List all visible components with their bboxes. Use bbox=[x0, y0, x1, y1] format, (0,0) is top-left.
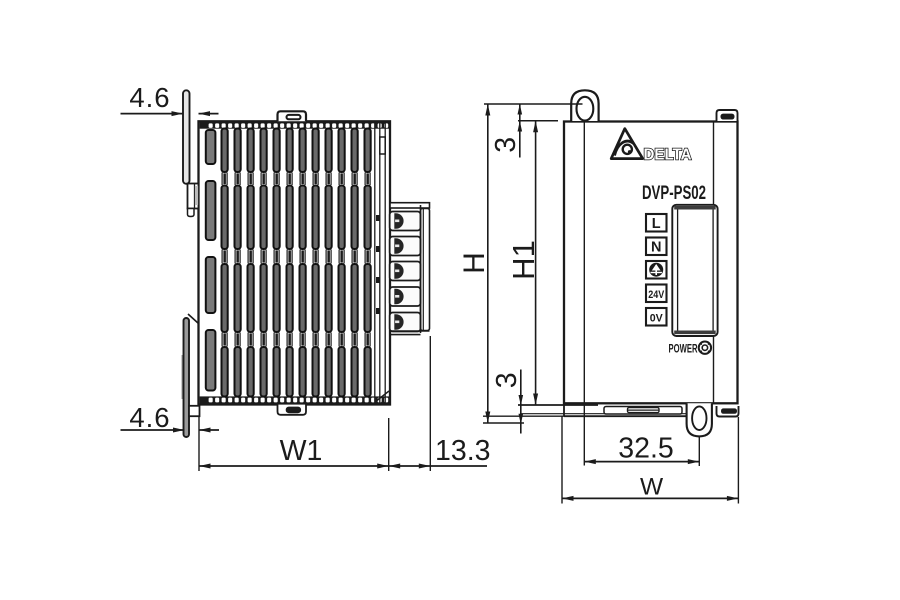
svg-text:24V: 24V bbox=[648, 289, 665, 301]
svg-text:W1: W1 bbox=[280, 435, 323, 467]
svg-text:DELTA: DELTA bbox=[644, 146, 692, 163]
svg-text:4.6: 4.6 bbox=[129, 82, 170, 113]
svg-text:H1: H1 bbox=[506, 240, 541, 280]
svg-text:3: 3 bbox=[491, 372, 523, 388]
svg-text:0V: 0V bbox=[650, 312, 664, 324]
svg-text:3: 3 bbox=[490, 137, 522, 153]
svg-text:DVP-PS02: DVP-PS02 bbox=[642, 183, 706, 204]
svg-text:POWER: POWER bbox=[669, 342, 698, 356]
svg-text:L: L bbox=[652, 216, 661, 232]
svg-text:4.6: 4.6 bbox=[129, 402, 170, 433]
svg-text:13.3: 13.3 bbox=[435, 435, 490, 467]
svg-text:N: N bbox=[651, 240, 661, 256]
svg-text:W: W bbox=[640, 474, 664, 501]
svg-text:32.5: 32.5 bbox=[618, 433, 673, 465]
svg-text:H: H bbox=[458, 252, 491, 274]
